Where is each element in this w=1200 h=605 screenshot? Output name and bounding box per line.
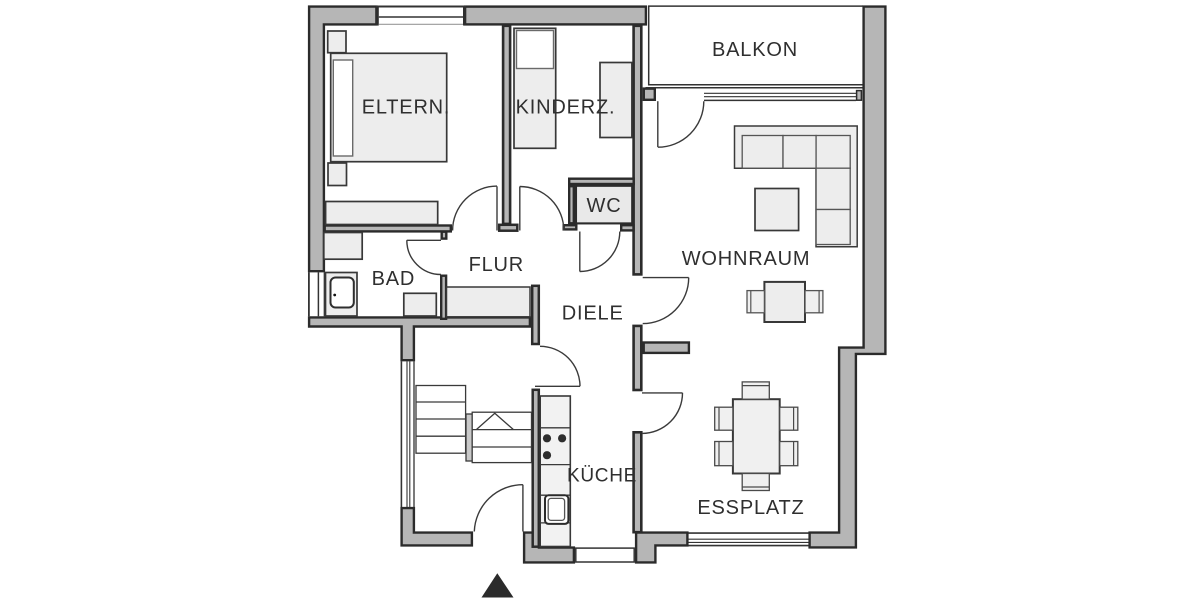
svg-text:KÜCHE: KÜCHE <box>567 466 637 487</box>
svg-text:BALKON: BALKON <box>712 39 798 61</box>
svg-text:DIELE: DIELE <box>562 303 624 325</box>
svg-text:WC: WC <box>587 195 622 217</box>
svg-text:WOHNRAUM: WOHNRAUM <box>682 248 811 270</box>
svg-text:BAD: BAD <box>372 268 416 290</box>
svg-text:ELTERN.: ELTERN. <box>362 96 451 118</box>
svg-text:FLUR: FLUR <box>469 254 524 276</box>
svg-text:ESSPLATZ: ESSPLATZ <box>697 497 804 519</box>
svg-text:KINDERZ.: KINDERZ. <box>516 96 616 118</box>
